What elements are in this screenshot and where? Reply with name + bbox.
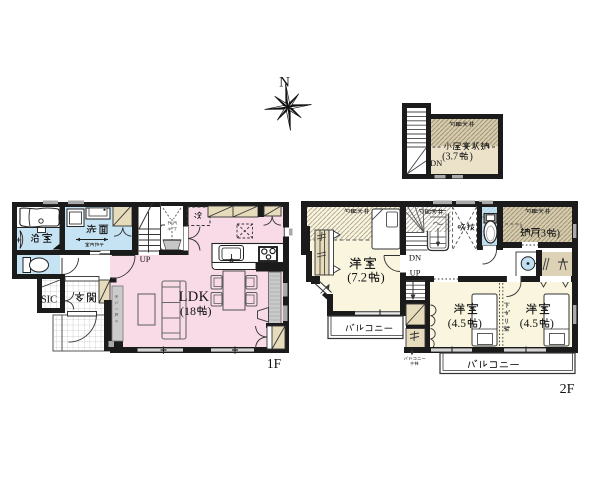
svg-text:(3: (3	[537, 229, 546, 240]
svg-text:): )	[208, 304, 212, 318]
svg-text:N: N	[279, 75, 290, 91]
svg-text:UP: UP	[410, 268, 421, 278]
svg-text:(4.5: (4.5	[448, 318, 466, 330]
svg-text:UP: UP	[140, 254, 151, 264]
svg-text:): )	[381, 271, 385, 285]
svg-text:SIC: SIC	[41, 295, 57, 306]
svg-text:(4.5: (4.5	[520, 318, 538, 330]
svg-text:LDK: LDK	[179, 289, 210, 305]
svg-text:): )	[550, 318, 554, 330]
svg-text:): )	[478, 318, 482, 330]
svg-text:(18: (18	[180, 304, 196, 318]
svg-text:1F: 1F	[267, 356, 282, 371]
svg-text:DN: DN	[430, 158, 442, 168]
svg-text:): )	[557, 229, 561, 240]
svg-text:(7.2: (7.2	[347, 271, 367, 285]
svg-text:2F: 2F	[560, 382, 575, 397]
svg-text:): )	[470, 152, 473, 163]
svg-text:DN: DN	[409, 253, 421, 263]
svg-text:(3.7: (3.7	[442, 152, 458, 163]
